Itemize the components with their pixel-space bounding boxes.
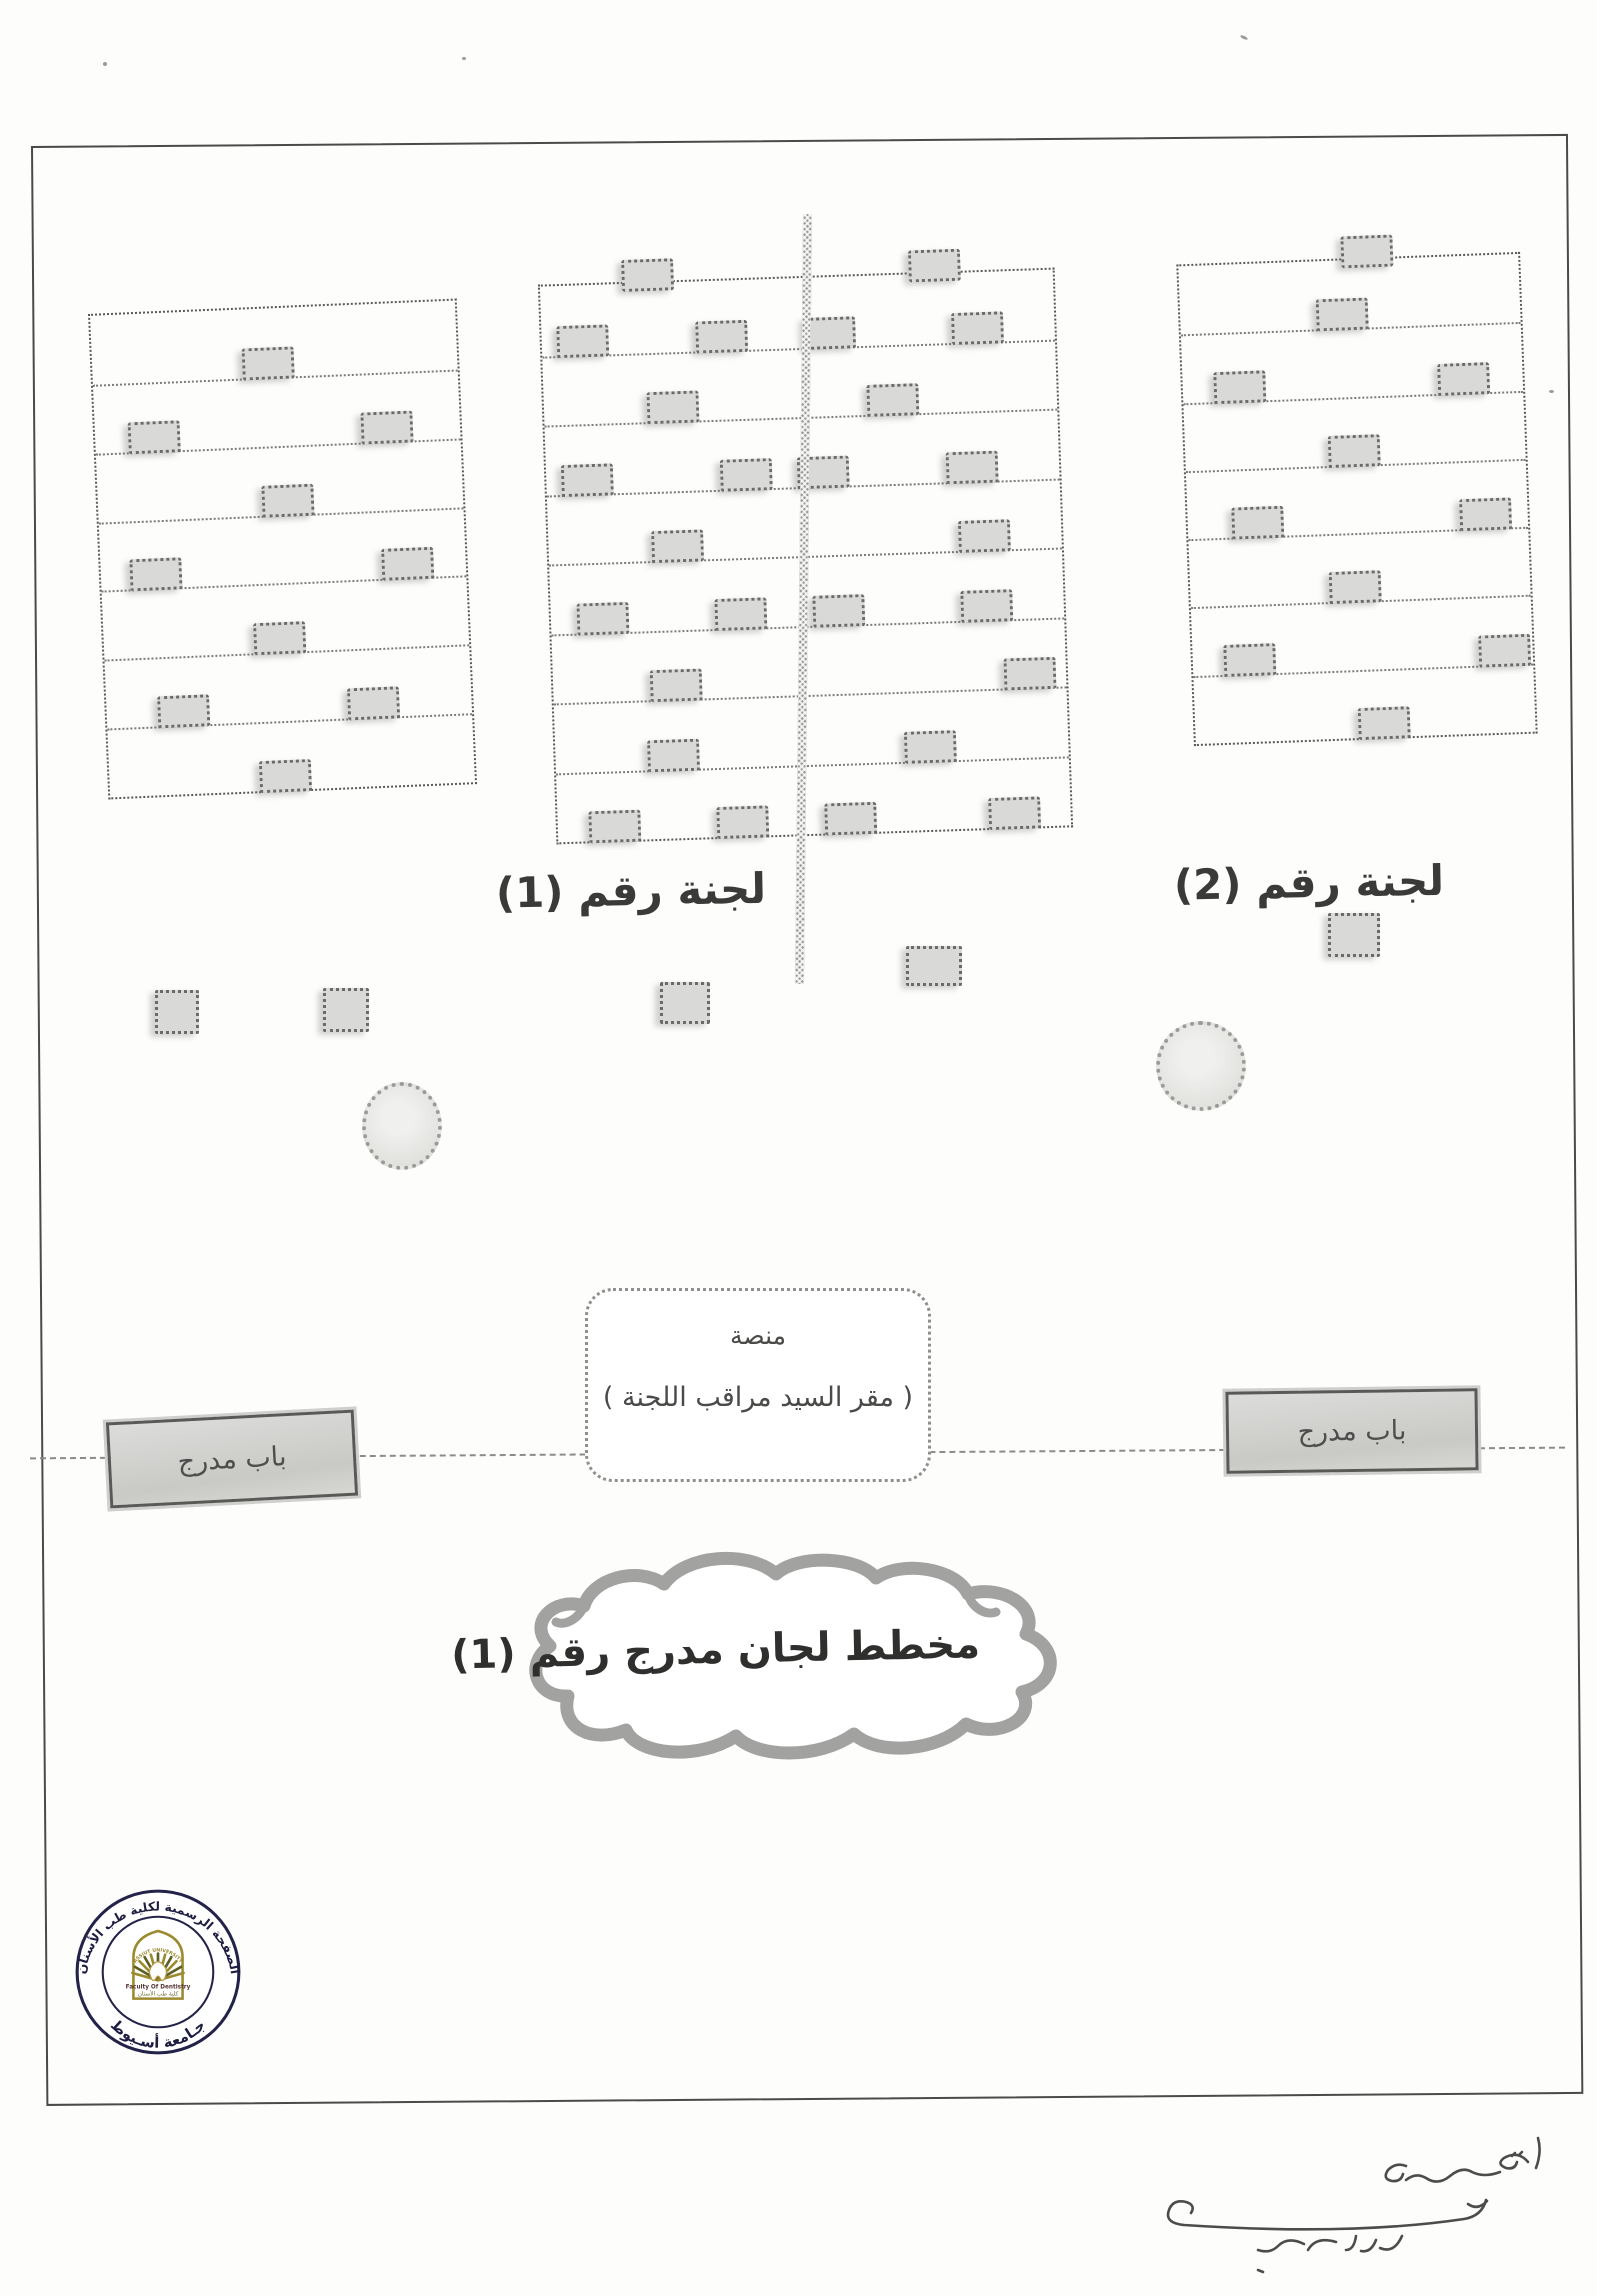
- handwritten-signature: [1140, 2118, 1590, 2283]
- desk: [1223, 643, 1276, 677]
- desk: [1328, 913, 1380, 957]
- seat-row-line: [556, 756, 1069, 775]
- door-left-box: باب مدرج: [106, 1410, 358, 1509]
- committee-1-left-seating-block: [88, 298, 477, 799]
- seat-row-line: [554, 686, 1067, 705]
- desk: [1358, 706, 1411, 740]
- desk: [946, 450, 999, 484]
- stamp-arch-ar-text: كلية طب الأسنان: [138, 1990, 179, 1998]
- desk: [557, 324, 610, 358]
- desk: [1437, 362, 1490, 396]
- desk: [1231, 506, 1284, 540]
- desk: [646, 390, 699, 424]
- desk: [1459, 497, 1512, 531]
- desk: [695, 319, 748, 353]
- platform-subtitle: ( مقر السيد مراقب اللجنة ): [588, 1382, 928, 1413]
- desk: [906, 946, 962, 986]
- desk: [361, 410, 414, 444]
- desk: [127, 420, 180, 454]
- desk: [262, 483, 315, 517]
- desk: [381, 547, 434, 581]
- desk: [716, 805, 769, 839]
- desk: [561, 463, 614, 497]
- plan-title: مخطط لجان مدرج رقم (1): [540, 1621, 981, 1676]
- faculty-stamp: الصفحة الرسمية لكلية طب الأسنان جـامعة أ…: [72, 1886, 244, 2058]
- desk: [1341, 235, 1394, 269]
- desk: [988, 796, 1041, 830]
- desk: [908, 249, 961, 283]
- desk: [660, 982, 710, 1024]
- desk: [651, 529, 704, 563]
- desk: [241, 346, 294, 380]
- desk: [961, 589, 1014, 623]
- desk: [259, 759, 312, 793]
- desk: [253, 621, 306, 655]
- desk: [347, 686, 400, 720]
- desk: [867, 383, 920, 417]
- desk: [650, 668, 703, 702]
- desk: [812, 594, 865, 628]
- invigilator-circle: [1156, 1021, 1246, 1111]
- desk: [1004, 657, 1057, 691]
- invigilator-circle: [362, 1082, 442, 1170]
- desk: [951, 311, 1004, 345]
- desk: [1327, 434, 1380, 468]
- desk: [720, 458, 773, 492]
- desk: [129, 557, 182, 591]
- desk: [958, 519, 1011, 553]
- door-left-label: باب مدرج: [177, 1441, 287, 1478]
- platform-title: منصة: [588, 1321, 928, 1350]
- desk: [904, 730, 957, 764]
- desk: [621, 258, 674, 292]
- desk: [323, 988, 369, 1032]
- stamp-arch-en-text: Faculty Of Dentistry: [126, 1984, 191, 1990]
- desk: [647, 738, 700, 772]
- desk: [157, 694, 210, 728]
- desk: [1316, 298, 1369, 332]
- committee-1-label: لجنة رقم (1): [516, 864, 767, 917]
- committee-2-label: لجنة رقم (2): [1194, 856, 1445, 909]
- door-right-box: باب مدرج: [1225, 1388, 1478, 1474]
- door-right-label: باب مدرج: [1297, 1415, 1406, 1448]
- desk: [588, 810, 641, 844]
- scanned-seating-plan-page: لجنة رقم (1) لجنة رقم (2) منصة ( مقر الس…: [0, 0, 1597, 2296]
- desk: [1213, 370, 1266, 404]
- committee-2-right-seating-block: [1176, 252, 1537, 746]
- desk: [715, 597, 768, 631]
- platform-box: منصة ( مقر السيد مراقب اللجنة ): [585, 1288, 931, 1482]
- desk: [155, 990, 199, 1034]
- desk: [824, 802, 877, 836]
- desk: [576, 601, 629, 635]
- desk: [1329, 570, 1382, 604]
- desk: [1478, 633, 1531, 667]
